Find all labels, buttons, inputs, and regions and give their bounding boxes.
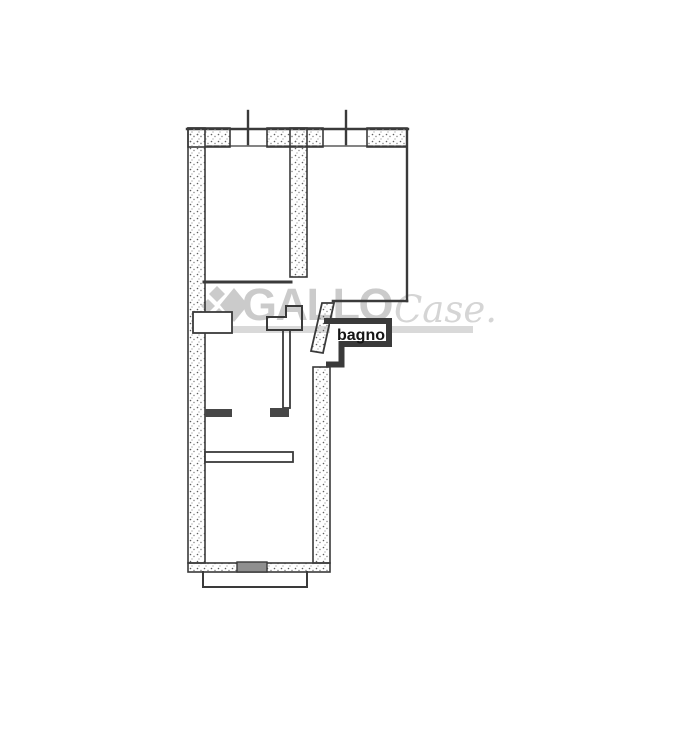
room-label-bagno: bagno [337, 327, 385, 344]
door-threshold [237, 562, 267, 572]
corridor-wall [283, 330, 290, 408]
outer-wall-right-lower [313, 367, 330, 563]
wall-segment-top-right [367, 128, 407, 147]
outer-wall-left [188, 128, 205, 563]
floor-plan [187, 111, 408, 587]
balcony-outline [203, 572, 307, 587]
wall-stub-lower [205, 409, 232, 417]
watermark-wordmark-italic: Case. [394, 288, 497, 331]
wall-stub-upper [193, 312, 232, 333]
scanned-floor-plan-page: GALLO Case. [0, 0, 675, 738]
floor-plan-drawing: GALLO Case. [0, 0, 675, 738]
partition-bottom-room [205, 452, 293, 462]
diamond-shape [209, 286, 225, 302]
corridor-wall-foot [270, 408, 289, 417]
interior-wall-center [290, 128, 307, 277]
